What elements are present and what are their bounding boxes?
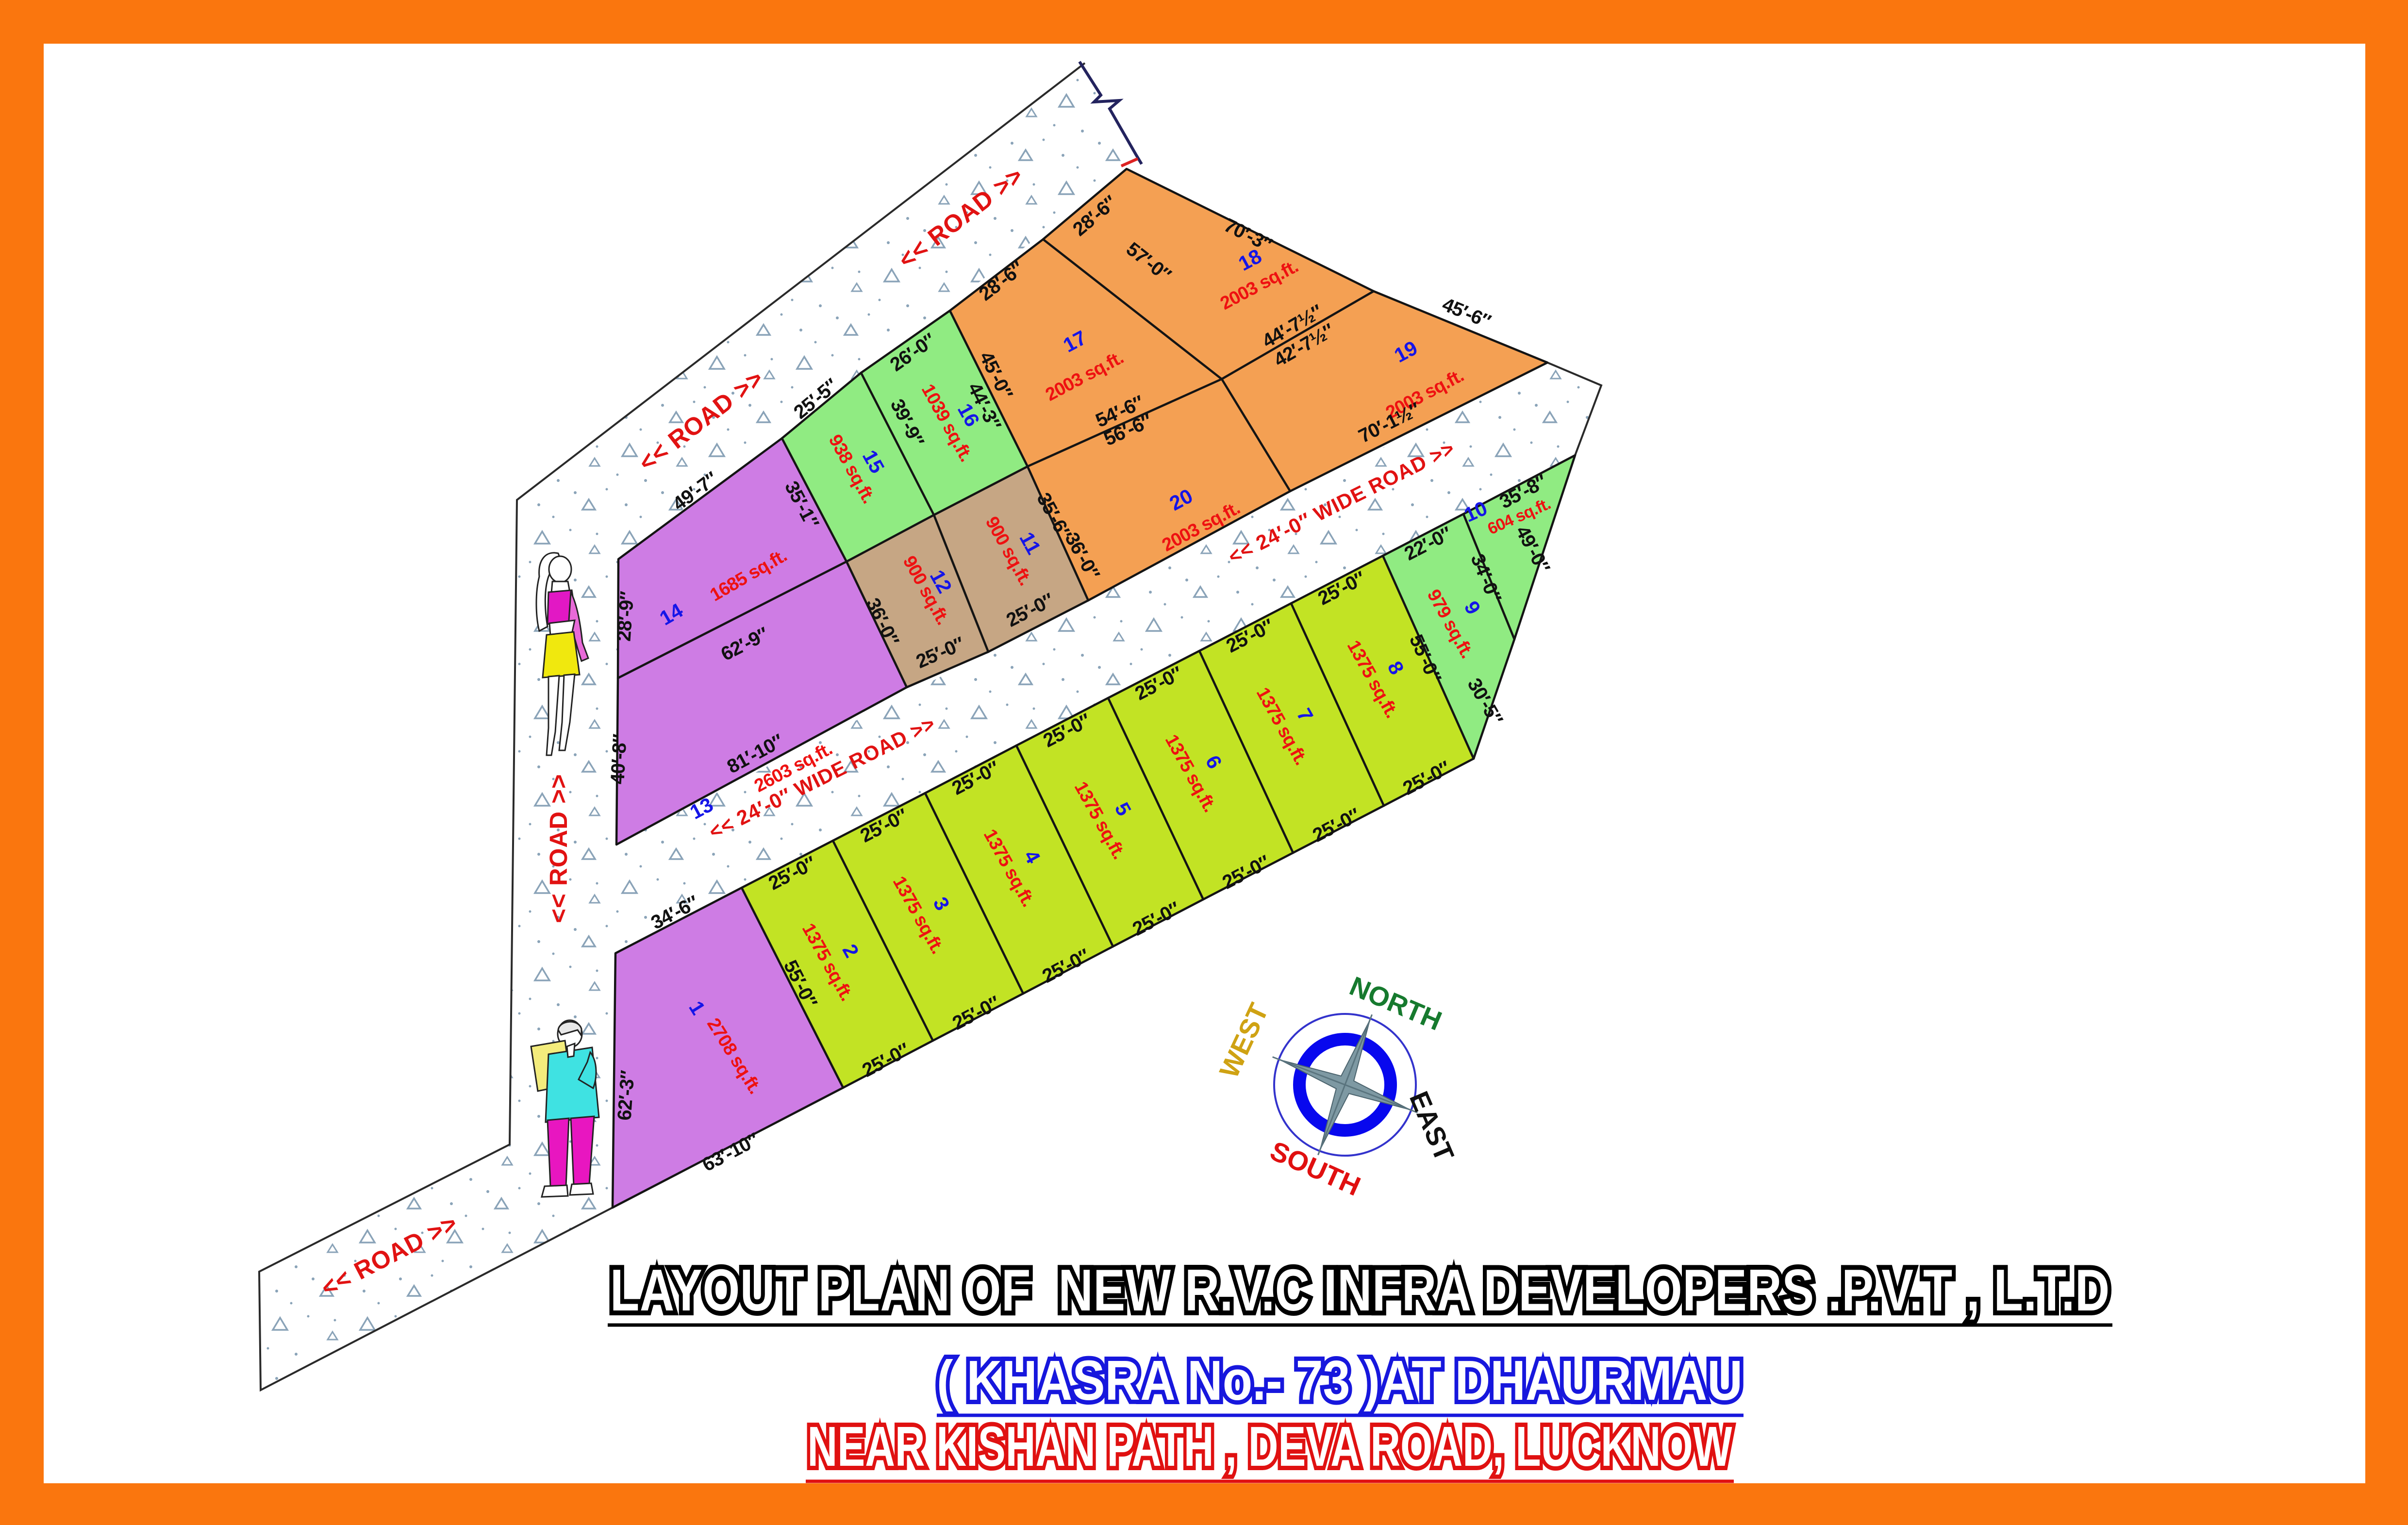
- svg-text:LAYOUT PLAN OF NEW R.V.C INFR: LAYOUT PLAN OF NEW R.V.C INFRA DEVELOPER…: [610, 1257, 2110, 1323]
- svg-text:<< ROAD >>: << ROAD >>: [545, 774, 572, 923]
- svg-text:40′-8″: 40′-8″: [607, 733, 631, 785]
- svg-text:NORTH: NORTH: [1345, 970, 1446, 1036]
- svg-text:NEAR KISHAN PATH , DEVA ROAD,: NEAR KISHAN PATH , DEVA ROAD, LUCKNOW: [808, 1415, 1732, 1478]
- svg-text:WEST: WEST: [1213, 998, 1274, 1082]
- svg-text:28′-9″: 28′-9″: [613, 590, 638, 642]
- svg-text:EAST: EAST: [1404, 1087, 1460, 1165]
- svg-text:62′-3″: 62′-3″: [614, 1069, 638, 1121]
- svg-text:SOUTH: SOUTH: [1266, 1135, 1365, 1202]
- svg-text:( KHASRA No.- 73 )AT DHAURMAU: ( KHASRA No.- 73 )AT DHAURMAU: [937, 1349, 1743, 1412]
